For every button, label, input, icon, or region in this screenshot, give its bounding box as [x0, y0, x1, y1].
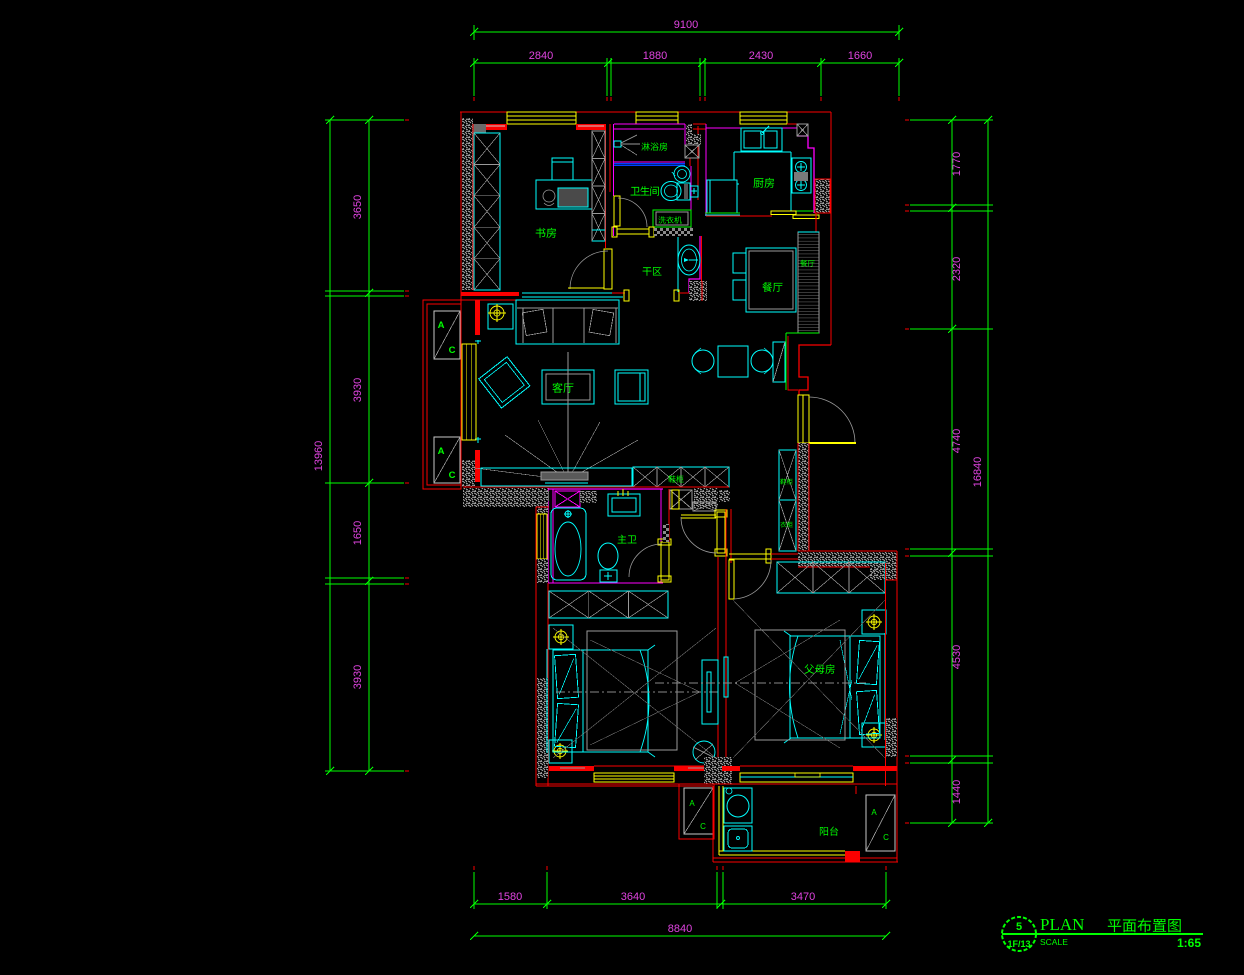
svg-text:C: C — [700, 822, 706, 831]
svg-text:1660: 1660 — [848, 50, 872, 62]
svg-text:16840: 16840 — [972, 457, 984, 488]
svg-text:9100: 9100 — [674, 19, 698, 31]
svg-text:5: 5 — [1016, 921, 1022, 933]
svg-text:PLAN: PLAN — [1040, 915, 1084, 934]
svg-text:C: C — [449, 345, 456, 356]
svg-text:2320: 2320 — [951, 257, 963, 281]
svg-text:1440: 1440 — [951, 780, 963, 804]
svg-text:A: A — [871, 808, 877, 817]
svg-text:1:65: 1:65 — [1177, 936, 1201, 950]
svg-text:A: A — [438, 320, 445, 331]
svg-text:A: A — [689, 799, 695, 808]
svg-text:C: C — [883, 833, 889, 842]
svg-text:2840: 2840 — [529, 50, 553, 62]
svg-text:3470: 3470 — [791, 891, 815, 903]
svg-text:1880: 1880 — [643, 50, 667, 62]
svg-text:3650: 3650 — [352, 195, 364, 219]
svg-text:3930: 3930 — [352, 665, 364, 689]
svg-text:1F/13: 1F/13 — [1007, 939, 1030, 949]
svg-text:3640: 3640 — [621, 891, 645, 903]
svg-text:A: A — [438, 446, 445, 457]
svg-text:SCALE: SCALE — [1040, 937, 1068, 947]
svg-text:C: C — [449, 470, 456, 481]
svg-text:4530: 4530 — [951, 645, 963, 669]
svg-text:8840: 8840 — [668, 923, 692, 935]
svg-text:2430: 2430 — [749, 50, 773, 62]
svg-text:13960: 13960 — [313, 441, 325, 472]
svg-text:1580: 1580 — [498, 891, 522, 903]
svg-text:1650: 1650 — [352, 521, 364, 545]
svg-text:3930: 3930 — [352, 378, 364, 402]
svg-text:1770: 1770 — [951, 152, 963, 176]
svg-text:4740: 4740 — [951, 429, 963, 453]
